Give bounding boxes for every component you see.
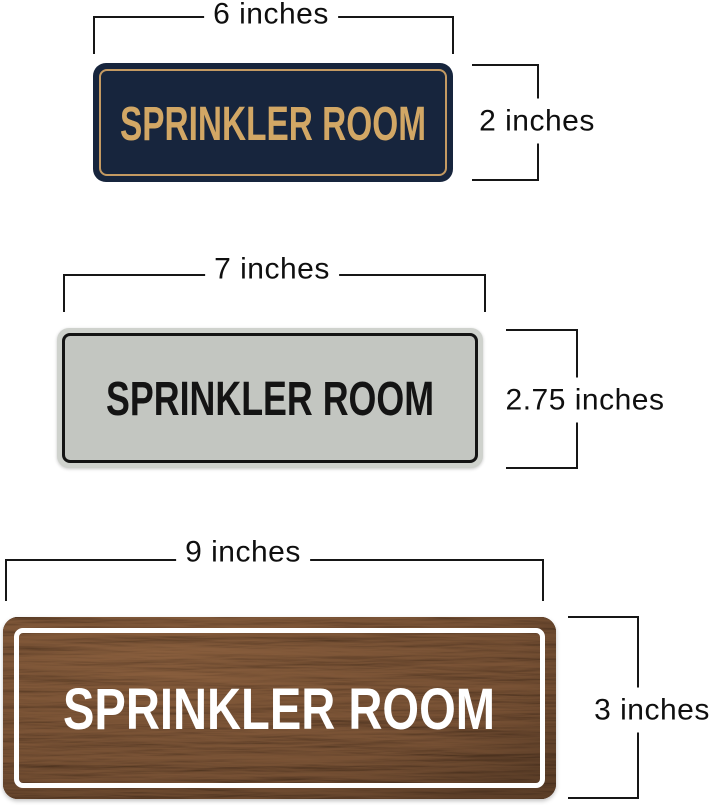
- product-dimension-diagram: 6 inches SPRINKLER ROOM 2 inches 7 inche…: [0, 0, 722, 805]
- sign-label: SPRINKLER ROOM: [120, 98, 426, 151]
- width-label-sign3: 9 inches: [176, 534, 310, 571]
- height-label-sign3: 3 inches: [585, 688, 719, 733]
- sign-text-graphic: SPRINKLER ROOM: [93, 63, 453, 182]
- height-label-sign1: 2 inches: [470, 99, 604, 144]
- sign-label: SPRINKLER ROOM: [63, 677, 495, 742]
- sign-text-graphic: SPRINKLER ROOM: [57, 328, 483, 468]
- height-label-sign2: 2.75 inches: [497, 378, 674, 423]
- sign-label: SPRINKLER ROOM: [106, 373, 434, 426]
- width-label-sign2: 7 inches: [205, 251, 339, 288]
- sign-text-graphic: SPRINKLER ROOM: [3, 617, 556, 799]
- sign-navy-gold: SPRINKLER ROOM: [93, 63, 453, 182]
- sign-silver-black: SPRINKLER ROOM: [57, 328, 483, 468]
- width-label-sign1: 6 inches: [204, 0, 338, 33]
- sign-walnut-white: SPRINKLER ROOM: [3, 617, 556, 799]
